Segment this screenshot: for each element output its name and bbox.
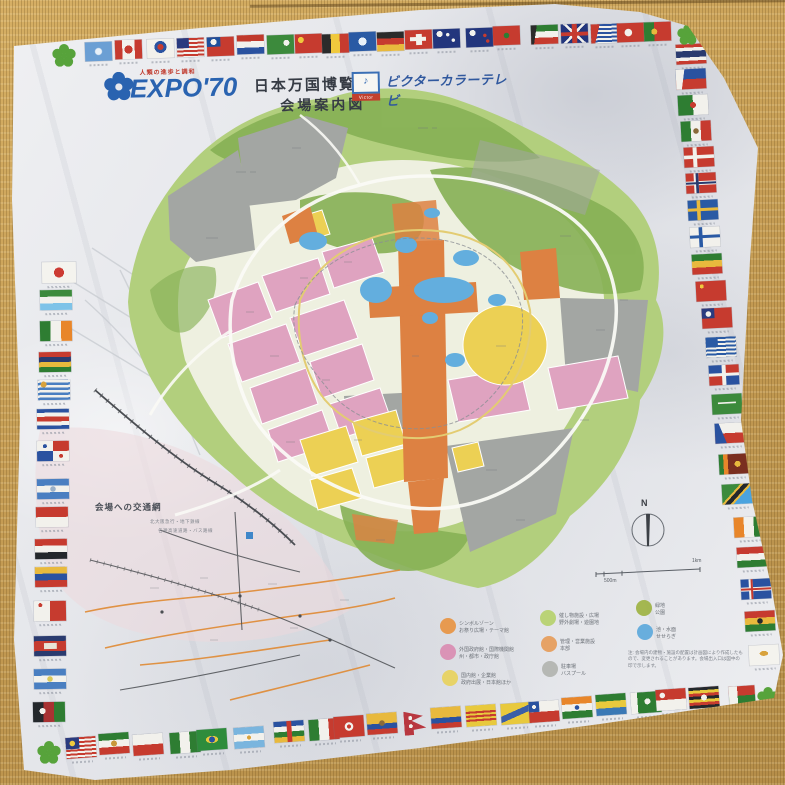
scale-label-500m: 500m xyxy=(604,578,617,584)
legend-item-label: 国内館・企業館 政府出展・日本館ほか xyxy=(461,670,511,686)
expo70-map-cloth: 人類の進歩と調和 EXPO'70 日本万国博覧会 会場案内図 ♪ Victor … xyxy=(0,0,785,785)
legend-note: 注: 会場内の建物・施設の配置は計画図により作成したもので、変更されることがあり… xyxy=(628,650,744,669)
legend-item-label: 催し物施設・広場 野外劇場・遊園地 xyxy=(559,610,599,626)
photo-scene: 人類の進歩と調和 EXPO'70 日本万国博覧会 会場案内図 ♪ Victor … xyxy=(0,0,785,785)
legend-item-admin: 管理・営業施設 本部 xyxy=(541,636,595,652)
scale-label-1km: 1km xyxy=(692,558,701,564)
legend-color-dot xyxy=(440,644,456,660)
legend-item-label: シンボルゾーン お祭り広場・テーマ館 xyxy=(459,618,509,634)
compass-north-label: N xyxy=(641,498,648,508)
legend-item-label: 駐車場 バスプール xyxy=(561,661,586,677)
legend-color-dot xyxy=(637,624,653,640)
legend-item-label: 管理・営業施設 本部 xyxy=(560,636,595,652)
legend-color-dot xyxy=(442,670,458,686)
legend-item-parking: 駐車場 バスプール xyxy=(542,661,586,677)
legend-color-dot xyxy=(540,610,556,626)
legend-color-dot xyxy=(541,636,557,652)
legend-color-dot xyxy=(636,600,652,616)
legend-item-label: 外国政府館・国際機関館 州・都市・政庁館 xyxy=(459,644,514,660)
legend-color-dot xyxy=(440,618,456,634)
legend-item-water: 池・水面 せせらぎ xyxy=(637,624,676,640)
legend-item-symbol-zone: シンボルゾーン お祭り広場・テーマ館 xyxy=(440,618,509,634)
legend-item-domestic-pavilions: 国内館・企業館 政府出展・日本館ほか xyxy=(442,670,511,686)
legend-color-dot xyxy=(542,661,558,677)
legend-item-label: 緑地 公園 xyxy=(655,600,665,616)
legend-item-label: 池・水面 せせらぎ xyxy=(656,624,676,640)
legend-item-green-space: 緑地 公園 xyxy=(636,600,665,616)
legend-item-event-green: 催し物施設・広場 野外劇場・遊園地 xyxy=(540,610,599,626)
legend-item-foreign-pavilions: 外国政府館・国際機関館 州・都市・政庁館 xyxy=(440,644,514,660)
